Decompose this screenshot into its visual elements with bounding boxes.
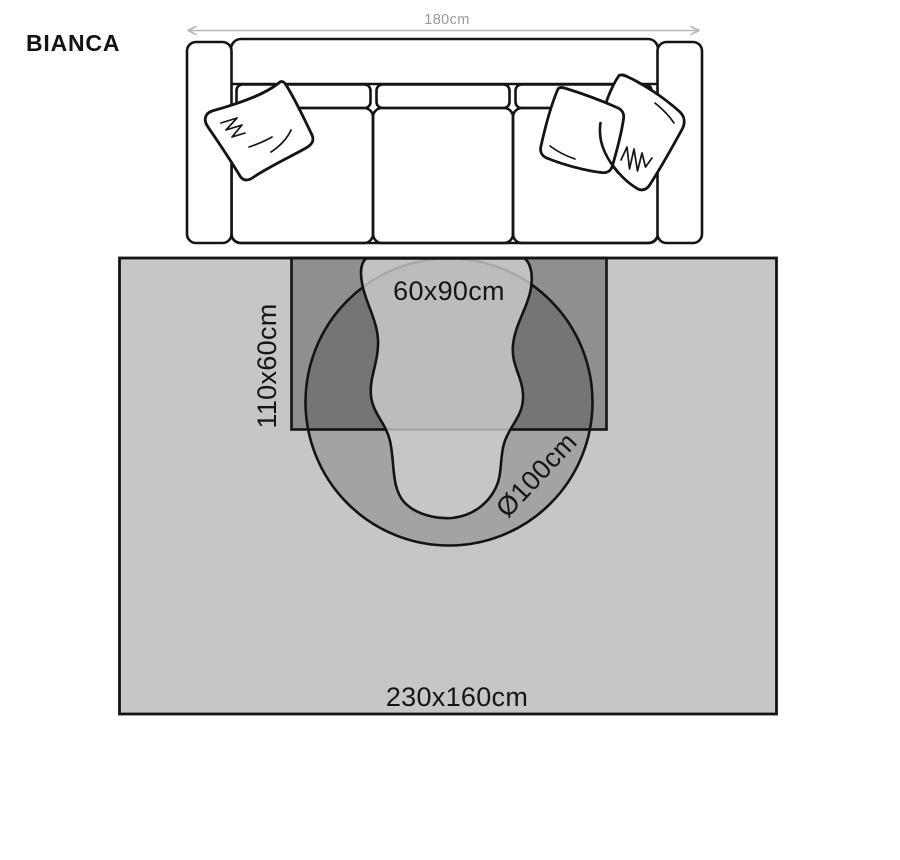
rug-size-overlay: 60x90cm 110x60cm Ø100cm 230x160cm: [120, 258, 777, 714]
rug-230x160-label: 230x160cm: [386, 682, 528, 712]
rug-size-diagram: BIANCA 180cm: [0, 0, 900, 860]
sofa-top-view: [187, 39, 702, 243]
page-title: BIANCA: [26, 30, 120, 56]
rug-60x90-label: 60x90cm: [393, 276, 505, 306]
rug-110x60-label: 110x60cm: [252, 304, 282, 429]
sofa-width-dimension: 180cm: [188, 12, 699, 35]
sofa-width-label: 180cm: [424, 12, 470, 28]
